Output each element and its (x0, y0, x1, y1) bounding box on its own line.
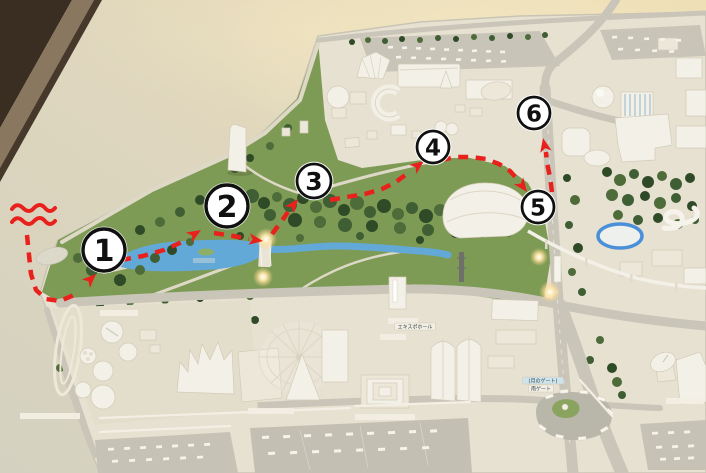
waypoint-number: 3 (305, 167, 322, 196)
parked-bus (578, 436, 586, 440)
parked-car (378, 448, 385, 451)
parked-car (430, 429, 437, 432)
parked-car (396, 56, 401, 59)
parked-car (197, 456, 203, 459)
central-curved-hall (443, 183, 528, 238)
parked-car (441, 58, 446, 61)
waypoint-badge-4: 4 (415, 129, 452, 166)
parked-car (129, 459, 135, 462)
stepped-pyramid (361, 375, 409, 408)
parked-car (163, 457, 169, 460)
parked-car (684, 430, 690, 433)
parked-car (112, 460, 118, 463)
station-sign (554, 256, 561, 282)
parked-car (283, 435, 290, 438)
parked-car (388, 46, 393, 49)
parked-bus (560, 389, 568, 393)
waypoint-number: 6 (526, 101, 542, 127)
sphere-dome (592, 86, 614, 108)
parked-car (676, 39, 681, 42)
parked-car (411, 56, 416, 59)
blue-ring-plaza (598, 224, 642, 248)
model-photo: エキスポホール(月のゲート)南ゲート 123456 (0, 0, 706, 473)
parked-car (652, 432, 658, 435)
parked-car (486, 50, 491, 53)
parked-car (674, 457, 680, 460)
parked-car (346, 432, 353, 435)
parked-car (416, 47, 421, 50)
parked-car (204, 443, 210, 446)
waypoint-badge-2: 2 (204, 183, 251, 230)
dome-hump (584, 150, 610, 166)
parked-car (409, 430, 416, 433)
waypoint-number: 5 (530, 195, 546, 221)
parked-car (669, 50, 674, 53)
parked-car (444, 48, 449, 51)
parked-car (268, 452, 275, 455)
parked-car (688, 444, 694, 447)
parked-car (367, 432, 374, 435)
parked-car (672, 445, 678, 448)
expo-tower-building (389, 277, 406, 309)
parked-car (430, 48, 435, 51)
waypoint-number: 4 (425, 135, 441, 161)
waypoint-badge-6: 6 (516, 95, 553, 132)
parked-car (500, 51, 505, 54)
parked-car (688, 456, 694, 459)
parked-car (618, 48, 623, 51)
parked-car (290, 451, 297, 454)
parked-car (652, 49, 657, 52)
parked-car (501, 60, 506, 63)
parked-car (656, 446, 662, 449)
parked-car (612, 36, 617, 39)
parked-car (486, 59, 491, 62)
waypoint-number: 2 (217, 190, 238, 225)
parked-car (628, 36, 633, 39)
waypoint-number: 1 (94, 234, 115, 269)
parked-car (660, 458, 666, 461)
parked-car (668, 431, 674, 434)
glass-striped-building (621, 92, 653, 118)
parked-car (660, 38, 665, 41)
parked-car (108, 448, 114, 451)
waypoint-badge-1: 1 (81, 227, 128, 274)
parked-car (140, 446, 146, 449)
parked-car (262, 436, 269, 439)
svg-text:南ゲート: 南ゲート (531, 386, 551, 393)
parked-car (388, 431, 395, 434)
parked-car (471, 59, 476, 62)
parked-car (400, 447, 407, 450)
river-island (198, 249, 214, 256)
parked-car (312, 450, 319, 453)
svg-text:(月のゲート): (月のゲート) (529, 378, 558, 385)
parked-car (172, 444, 178, 447)
parked-car (304, 434, 311, 437)
parked-car (146, 458, 152, 461)
parked-car (635, 48, 640, 51)
parked-car (334, 449, 341, 452)
parked-car (456, 58, 461, 61)
parked-car (356, 448, 363, 451)
parked-car (426, 57, 431, 60)
parked-car (325, 433, 332, 436)
river-label-chip (193, 258, 215, 263)
cylinder-pavilion (327, 86, 349, 108)
parked-bus (580, 390, 588, 394)
parked-car (156, 445, 162, 448)
waypoint-badge-5: 5 (520, 189, 557, 226)
parked-car (124, 447, 130, 450)
parked-car (188, 444, 194, 447)
parked-car (644, 37, 649, 40)
model-label-3: 南ゲート (529, 385, 554, 393)
parked-car (402, 46, 407, 49)
model-label-1: エキスポホール (395, 323, 435, 331)
parked-car (458, 49, 463, 52)
svg-text:エキスポホール: エキスポホール (398, 324, 433, 331)
model-label-2: (月のゲート) (523, 377, 563, 385)
parked-car (180, 456, 186, 459)
waypoint-badge-3: 3 (295, 162, 334, 201)
parked-car (422, 446, 429, 449)
parked-car (472, 49, 477, 52)
